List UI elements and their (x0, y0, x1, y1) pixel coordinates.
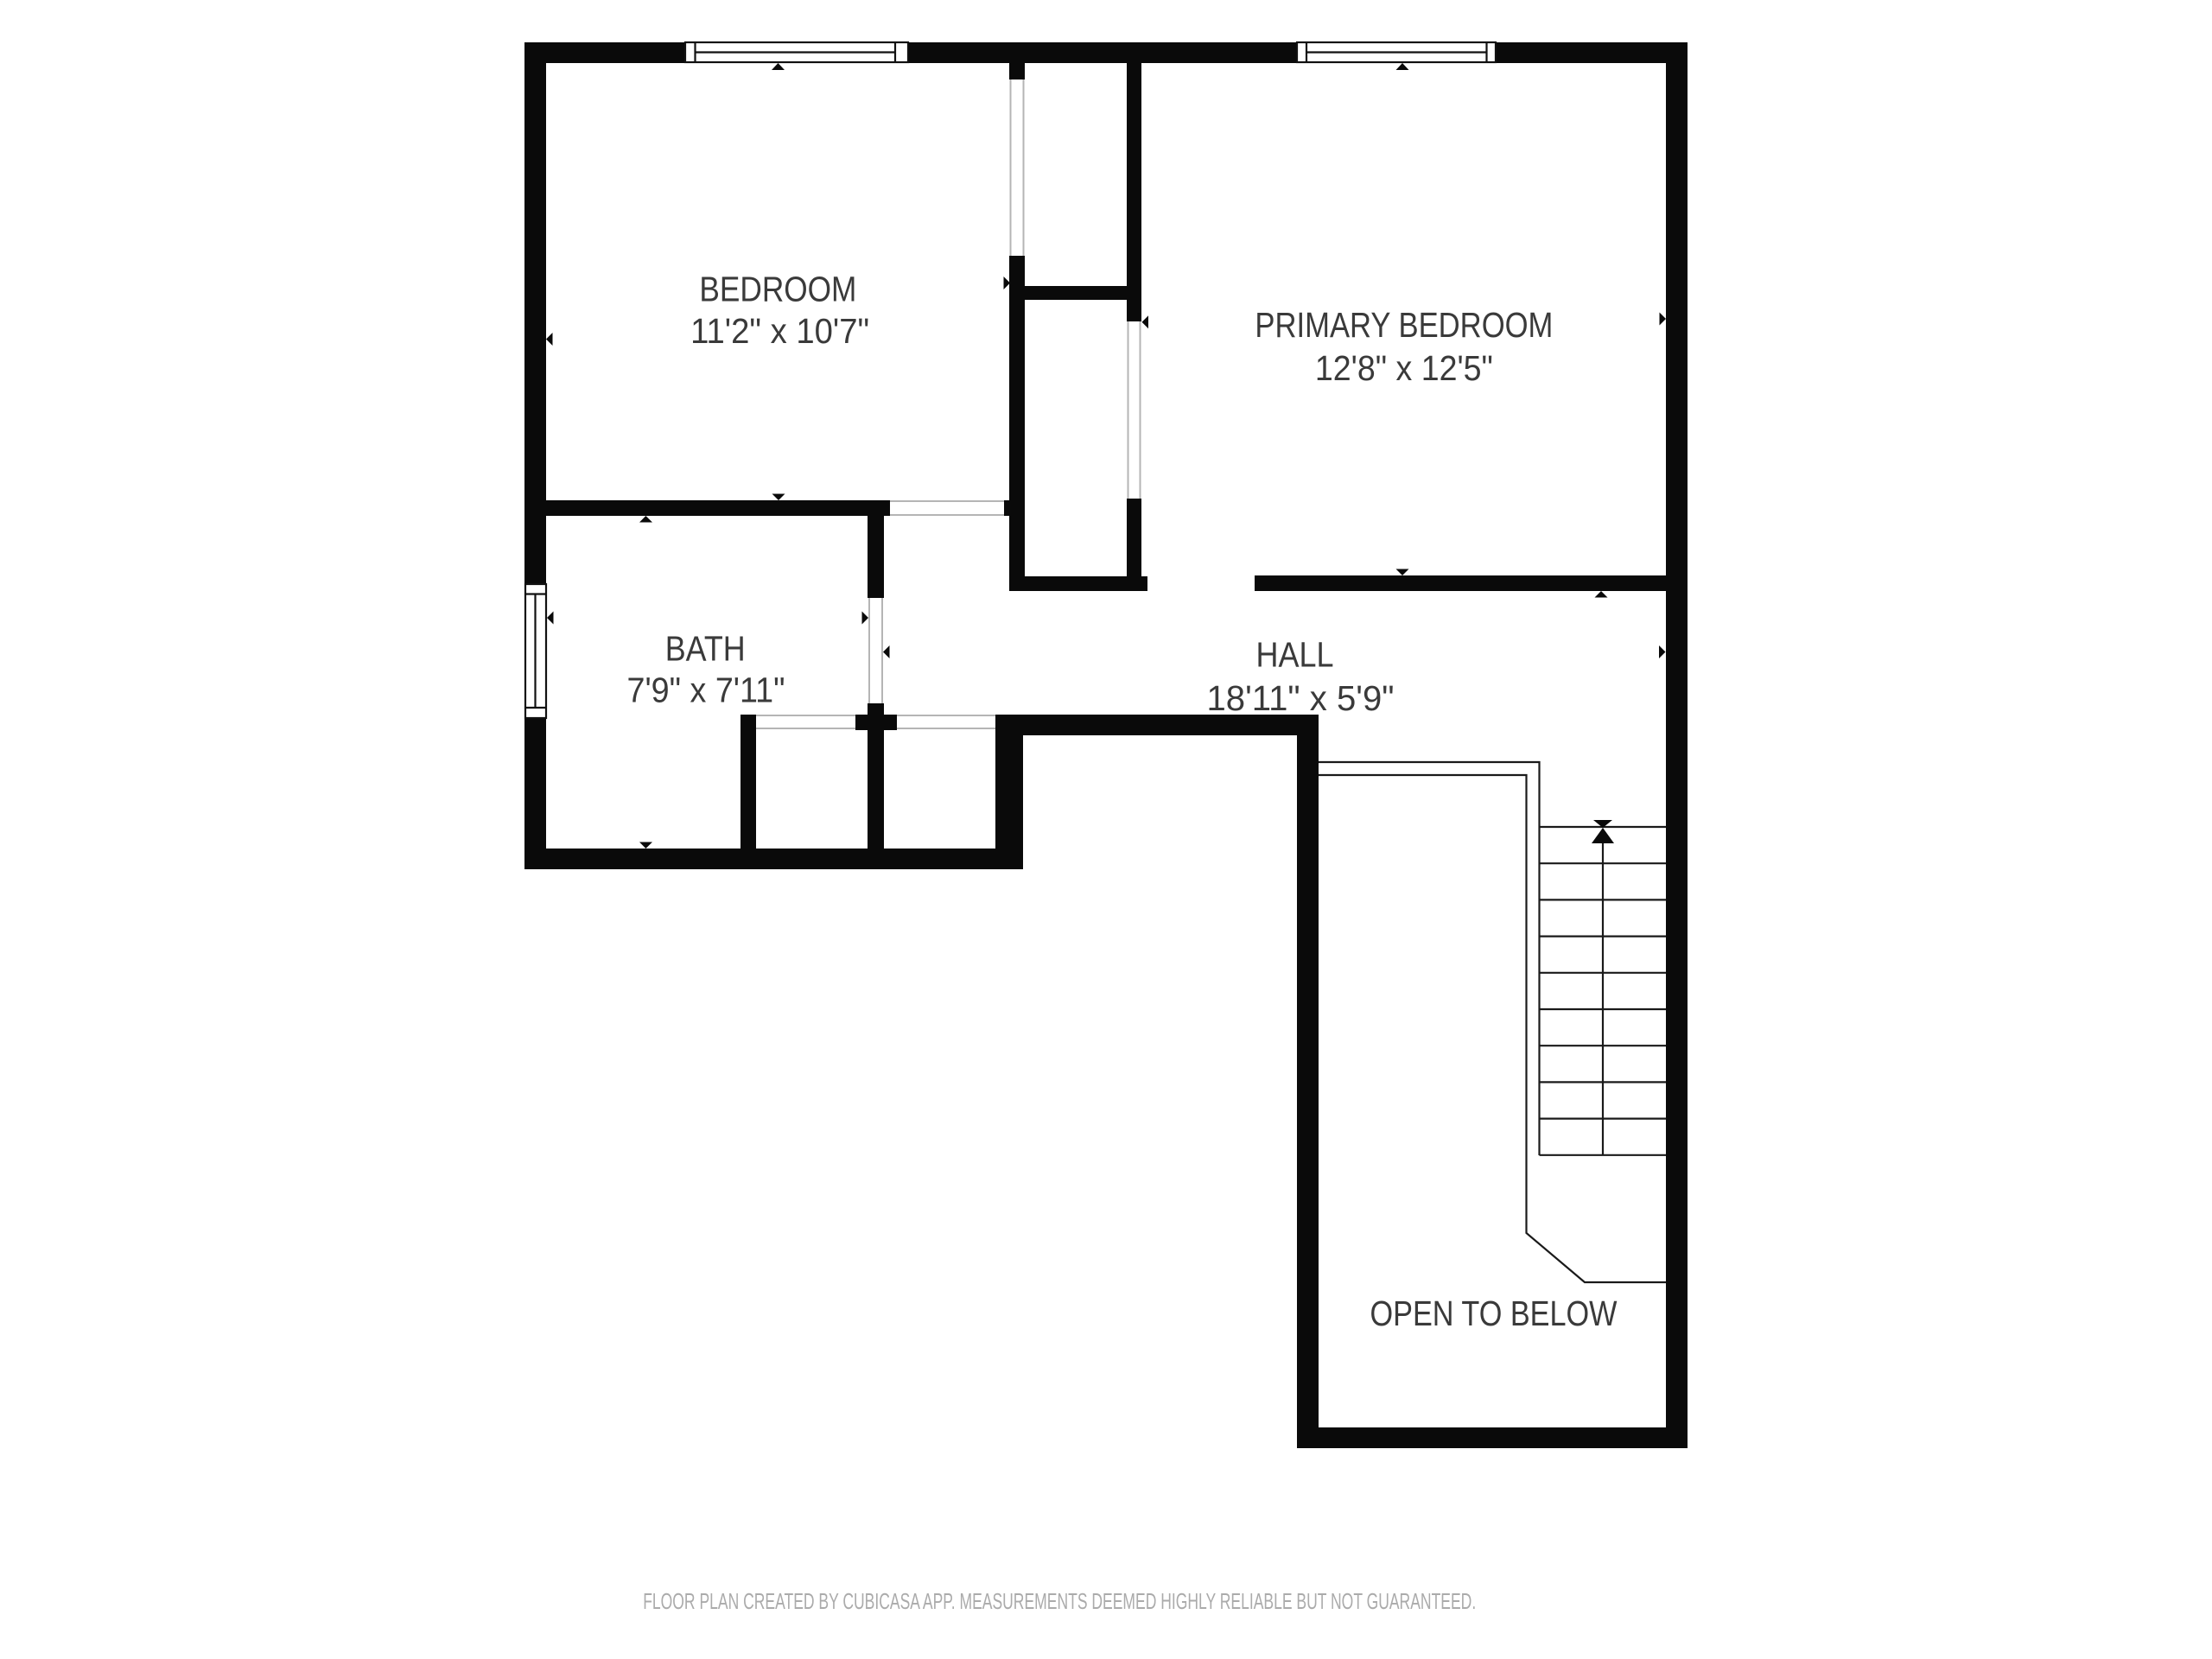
svg-text:7'9" x 7'11": 7'9" x 7'11" (627, 671, 785, 710)
svg-text:18'11" x 5'9": 18'11" x 5'9" (1207, 678, 1395, 718)
svg-text:BATH: BATH (665, 629, 746, 669)
svg-text:HALL: HALL (1256, 635, 1334, 675)
svg-text:12'8" x 12'5": 12'8" x 12'5" (1315, 348, 1493, 388)
svg-text:11'2" x 10'7": 11'2" x 10'7" (690, 311, 869, 351)
svg-text:PRIMARY BEDROOM: PRIMARY BEDROOM (1255, 305, 1553, 345)
svg-text:OPEN TO BELOW: OPEN TO BELOW (1370, 1294, 1618, 1333)
svg-text:BEDROOM: BEDROOM (699, 270, 856, 309)
svg-text:FLOOR PLAN CREATED BY CUBICASA: FLOOR PLAN CREATED BY CUBICASA APP. MEAS… (643, 1588, 1476, 1614)
